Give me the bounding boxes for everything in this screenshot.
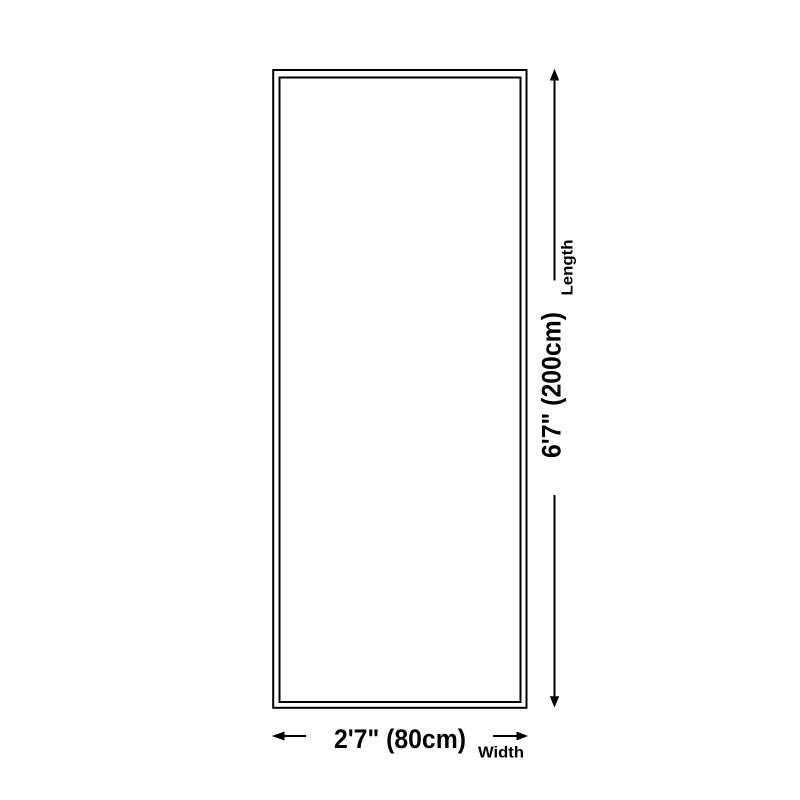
svg-text:6'7" (200cm): 6'7" (200cm) xyxy=(537,312,567,458)
svg-text:Length: Length xyxy=(560,240,577,296)
svg-text:Width: Width xyxy=(478,744,524,761)
svg-text:2'7" (80cm): 2'7" (80cm) xyxy=(334,724,466,754)
